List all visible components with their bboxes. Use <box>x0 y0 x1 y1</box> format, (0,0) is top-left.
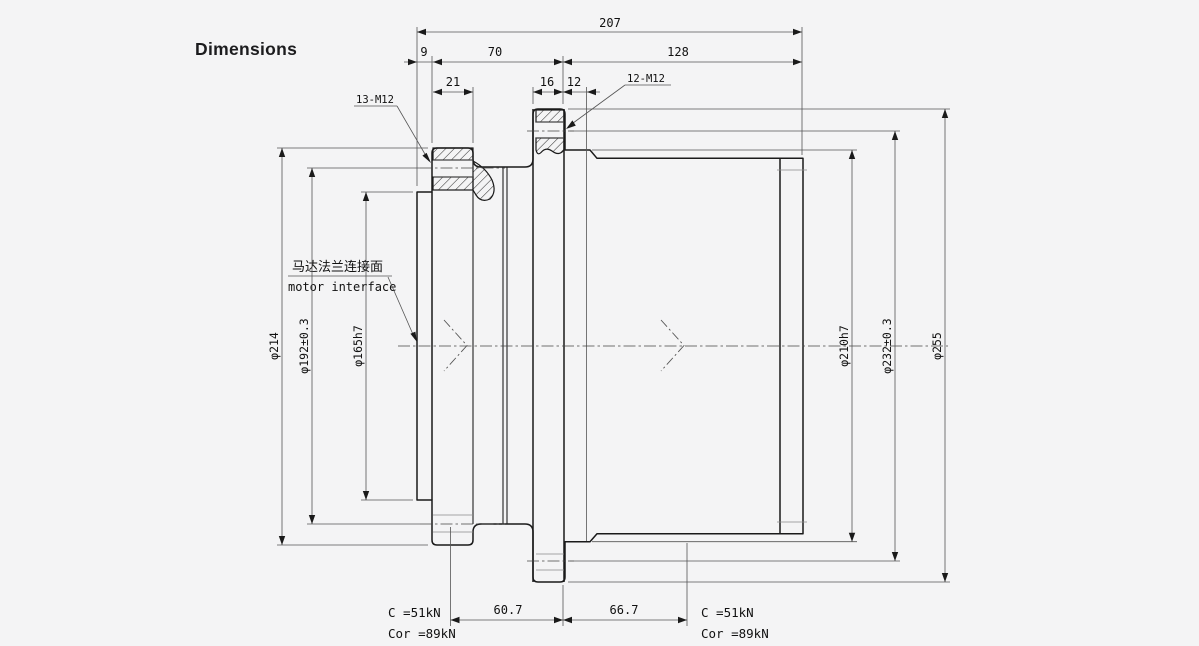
technical-drawing: Dimensions <box>0 0 1199 646</box>
motor-interface-en: motor interface <box>288 280 396 294</box>
leader-13-M12: 13-M12 <box>354 94 431 163</box>
thread-label-right: 12-M12 <box>627 73 665 85</box>
load-cor: Cor =89kN <box>388 626 456 641</box>
dia-label: φ214 <box>267 332 281 360</box>
dim-value: 70 <box>488 45 502 59</box>
hatch-band-wavy <box>536 138 564 154</box>
dim-value: 66.7 <box>610 603 639 617</box>
dimension-drawing-page: Dimensions <box>0 0 1199 646</box>
dim-value: 128 <box>667 45 689 59</box>
axis-chevron-right <box>661 320 684 371</box>
hatch-band <box>433 177 473 190</box>
motor-interface-zh: 马达法兰连接面 <box>292 259 383 275</box>
hatch-band <box>536 110 564 122</box>
dia-label: φ232±0.3 <box>880 318 894 373</box>
load-c: C =51kN <box>388 605 441 620</box>
dia-label: φ210h7 <box>837 325 851 367</box>
load-rating-right: C =51kN Cor =89kN <box>701 605 769 641</box>
load-rating-left: C =51kN Cor =89kN <box>388 605 456 641</box>
housing-cross-section <box>417 87 807 582</box>
load-c: C =51kN <box>701 605 754 620</box>
thread-label-left: 13-M12 <box>356 94 394 106</box>
thread-hole-12-M12-section <box>527 110 574 154</box>
dia-label: φ165h7 <box>351 325 365 367</box>
dim-value: 9 <box>420 45 427 59</box>
hatch-band <box>433 148 473 160</box>
dia-label: φ192±0.3 <box>297 318 311 373</box>
dim-value: 60.7 <box>494 603 523 617</box>
dia-label: φ255 <box>930 332 944 360</box>
dim-total-207: 207 <box>417 16 802 186</box>
dim-dia-214: φ214 <box>267 148 428 545</box>
load-cor: Cor =89kN <box>701 626 769 641</box>
dim-value: 21 <box>446 75 460 89</box>
axis-chevron-left <box>444 320 467 371</box>
dim-value: 16 <box>540 75 554 89</box>
leader-12-M12: 12-M12 <box>566 73 671 129</box>
dim-value: 207 <box>599 16 621 30</box>
dim-value: 12 <box>567 75 581 89</box>
page-title: Dimensions <box>195 39 297 59</box>
dim-row-9-70-128: 9 70 128 <box>404 45 802 143</box>
